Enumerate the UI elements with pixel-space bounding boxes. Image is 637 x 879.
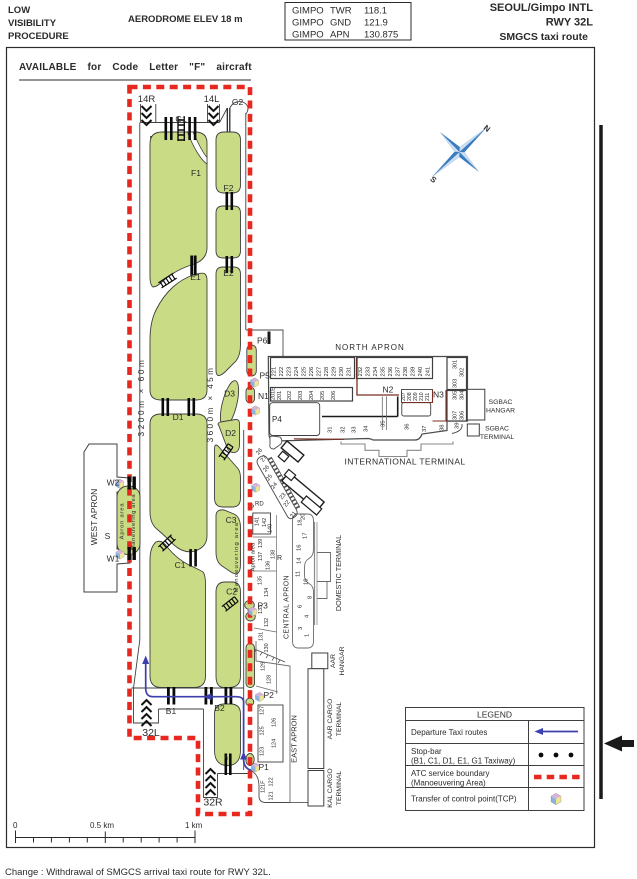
- svg-text:G1: G1: [175, 114, 187, 124]
- svg-text:GIMPO: GIMPO: [292, 30, 324, 41]
- svg-text:CENTRAL APRON: CENTRAL APRON: [284, 575, 291, 639]
- svg-text:211: 211: [425, 393, 431, 401]
- svg-text:ATC service boundary: ATC service boundary: [411, 769, 490, 778]
- svg-text:P5: P5: [260, 371, 271, 381]
- svg-text:1: 1: [305, 634, 311, 637]
- svg-text:137: 137: [258, 552, 264, 561]
- svg-text:130.875: 130.875: [364, 30, 398, 41]
- svg-text:A: A: [224, 756, 228, 762]
- svg-text:0.5 km: 0.5 km: [90, 821, 114, 830]
- svg-text:Maneuvering area: Maneuvering area: [131, 494, 137, 551]
- svg-text:GIMPO: GIMPO: [292, 6, 324, 17]
- svg-text:HANGAR: HANGAR: [339, 646, 346, 675]
- svg-text:14L: 14L: [204, 94, 220, 105]
- svg-text:W1: W1: [107, 554, 120, 564]
- svg-text:135: 135: [258, 576, 264, 585]
- svg-text:127: 127: [260, 706, 266, 715]
- svg-text:129: 129: [261, 662, 267, 671]
- svg-text:N1: N1: [258, 391, 269, 401]
- svg-text:SGBAC: SGBAC: [489, 399, 513, 406]
- svg-text:PROCEDURE: PROCEDURE: [8, 31, 69, 42]
- svg-text:P3: P3: [258, 601, 269, 611]
- svg-text:N3: N3: [433, 390, 444, 400]
- svg-text:305: 305: [453, 391, 459, 400]
- svg-text:G2: G2: [232, 97, 244, 107]
- svg-text:8: 8: [308, 596, 314, 599]
- svg-text:(Manoeuvering Area): (Manoeuvering Area): [411, 779, 486, 788]
- svg-text:10: 10: [304, 579, 310, 585]
- svg-text:P2: P2: [264, 690, 275, 700]
- svg-text:16: 16: [297, 545, 303, 551]
- svg-text:136: 136: [266, 561, 272, 570]
- svg-text:125: 125: [260, 726, 266, 735]
- svg-text:C2: C2: [226, 587, 237, 597]
- svg-text:WEST APRON: WEST APRON: [89, 489, 99, 546]
- svg-text:140: 140: [268, 524, 274, 533]
- svg-text:121: 121: [269, 791, 275, 800]
- svg-text:Change : Withdrawal of SMGCS a: Change : Withdrawal of SMGCS arrival tax…: [5, 867, 271, 878]
- svg-text:N2: N2: [383, 385, 394, 395]
- svg-text:236: 236: [388, 367, 394, 377]
- svg-text:Apron area: Apron area: [120, 503, 126, 540]
- svg-text:34: 34: [364, 425, 370, 432]
- svg-text:223: 223: [287, 367, 293, 377]
- svg-text:237: 237: [396, 367, 402, 377]
- svg-text:224: 224: [294, 366, 300, 376]
- svg-text:C3: C3: [226, 515, 237, 525]
- svg-text:B2: B2: [214, 703, 225, 713]
- svg-text:14R: 14R: [138, 94, 156, 105]
- svg-text:31: 31: [328, 427, 334, 433]
- svg-text:SMGCS taxi route: SMGCS taxi route: [499, 31, 588, 43]
- svg-text:F1: F1: [191, 168, 201, 178]
- svg-text:AAR CARGO: AAR CARGO: [327, 699, 334, 740]
- svg-text:SGBAC: SGBAC: [485, 426, 509, 433]
- svg-text:37: 37: [422, 426, 428, 432]
- svg-text:P4: P4: [272, 415, 282, 424]
- svg-text:131: 131: [259, 632, 265, 641]
- svg-text:36: 36: [405, 424, 411, 430]
- svg-text:TERMINAL: TERMINAL: [336, 771, 343, 806]
- svg-text:202: 202: [287, 391, 293, 400]
- svg-text:R: R: [277, 555, 282, 562]
- svg-text:P6: P6: [257, 336, 268, 346]
- svg-text:118.1: 118.1: [364, 6, 387, 17]
- svg-text:NORTH APRON: NORTH APRON: [335, 343, 405, 352]
- svg-text:138: 138: [271, 550, 277, 559]
- svg-text:132: 132: [264, 618, 270, 627]
- svg-text:235: 235: [381, 367, 387, 377]
- svg-text:Stop-bar: Stop-bar: [411, 747, 442, 756]
- svg-text:AAR: AAR: [330, 654, 337, 668]
- svg-text:139: 139: [258, 539, 264, 548]
- svg-text:307: 307: [453, 411, 459, 420]
- svg-text:EAST APRON: EAST APRON: [290, 715, 299, 763]
- svg-text:33: 33: [352, 427, 358, 433]
- svg-text:301: 301: [453, 360, 459, 369]
- svg-text:231: 231: [347, 367, 353, 377]
- svg-text:233: 233: [366, 367, 372, 377]
- svg-text:17: 17: [303, 533, 309, 539]
- svg-text:205: 205: [320, 391, 326, 400]
- svg-text:S: S: [105, 531, 111, 541]
- svg-text:TWR: TWR: [330, 6, 352, 17]
- svg-text:INTERNATIONAL TERMINAL: INTERNATIONAL TERMINAL: [344, 457, 465, 467]
- svg-text:241: 241: [426, 367, 432, 377]
- svg-text:128: 128: [267, 675, 273, 684]
- svg-text:124: 124: [272, 739, 278, 748]
- svg-text:123: 123: [260, 747, 266, 756]
- svg-text:0: 0: [13, 821, 18, 830]
- svg-text:14: 14: [297, 557, 303, 564]
- svg-text:AERODROME ELEV 18 m: AERODROME ELEV 18 m: [128, 14, 243, 25]
- svg-text:LOW: LOW: [8, 5, 30, 16]
- svg-text:126: 126: [272, 718, 278, 727]
- svg-text:201E: 201E: [271, 387, 277, 400]
- svg-text:230: 230: [339, 367, 345, 377]
- svg-text:3600m × 45m: 3600m × 45m: [206, 366, 215, 443]
- svg-text:306: 306: [460, 411, 466, 420]
- svg-text:3: 3: [298, 627, 304, 630]
- svg-text:F2: F2: [224, 183, 234, 193]
- svg-text:TERMINAL: TERMINAL: [336, 702, 343, 737]
- svg-text:35: 35: [381, 421, 387, 427]
- svg-text:303: 303: [453, 379, 459, 388]
- svg-text:Manoeuvering area: Manoeuvering area: [234, 522, 240, 592]
- svg-text:39: 39: [455, 423, 461, 429]
- svg-text:TERMINAL: TERMINAL: [480, 434, 515, 441]
- svg-text:3200m × 60m: 3200m × 60m: [137, 358, 146, 437]
- svg-text:VISIBILITY: VISIBILITY: [8, 18, 57, 29]
- svg-text:Departure Taxi routes: Departure Taxi routes: [411, 728, 487, 737]
- svg-text:134: 134: [264, 588, 270, 597]
- svg-text:GND: GND: [330, 18, 351, 29]
- svg-text:232: 232: [358, 367, 364, 377]
- svg-text:11: 11: [296, 571, 302, 577]
- svg-text:D1: D1: [173, 412, 184, 422]
- svg-text:RWY 32L: RWY 32L: [546, 17, 594, 29]
- svg-text:32: 32: [341, 427, 347, 433]
- svg-text:KAL CARGO: KAL CARGO: [327, 768, 334, 807]
- svg-text:AVAILABLE for Code Letter "F": AVAILABLE for Code Letter "F" aircraft: [19, 62, 252, 73]
- svg-text:130: 130: [264, 643, 270, 652]
- svg-text:DOMESTIC TERMINAL: DOMESTIC TERMINAL: [334, 535, 343, 611]
- svg-text:38: 38: [440, 425, 446, 431]
- svg-text:225: 225: [302, 367, 308, 377]
- svg-text:W2: W2: [107, 478, 120, 488]
- svg-text:20: 20: [301, 514, 307, 520]
- svg-text:121.9: 121.9: [364, 18, 388, 29]
- svg-text:E1: E1: [190, 272, 201, 282]
- svg-text:227: 227: [317, 367, 323, 377]
- svg-text:Transfer of control point(TCP): Transfer of control point(TCP): [411, 795, 517, 804]
- svg-text:D2: D2: [225, 428, 236, 438]
- svg-text:32R: 32R: [203, 797, 223, 809]
- svg-text:(B1, C1, D1, E1, G1 Taxiway): (B1, C1, D1, E1, G1 Taxiway): [411, 757, 516, 766]
- svg-text:234: 234: [373, 366, 379, 376]
- svg-text:204: 204: [309, 391, 315, 400]
- svg-text:228: 228: [324, 367, 330, 377]
- svg-text:1 km: 1 km: [185, 821, 203, 830]
- svg-text:P1: P1: [259, 762, 270, 772]
- svg-text:Apron area: Apron area: [251, 542, 257, 571]
- svg-text:C1: C1: [175, 560, 186, 570]
- svg-text:239: 239: [411, 367, 417, 377]
- svg-text:D3: D3: [224, 389, 235, 399]
- svg-text:203: 203: [298, 391, 304, 400]
- svg-text:221: 221: [272, 367, 278, 377]
- svg-text:B1: B1: [166, 706, 177, 716]
- svg-text:240: 240: [418, 367, 424, 377]
- svg-text:SEOUL/Gimpo INTL: SEOUL/Gimpo INTL: [490, 2, 594, 14]
- svg-text:229: 229: [332, 367, 338, 377]
- svg-text:LEGEND: LEGEND: [477, 710, 512, 720]
- svg-text:HANGAR: HANGAR: [486, 408, 515, 415]
- svg-text:E2: E2: [223, 268, 234, 278]
- svg-text:304: 304: [460, 391, 466, 400]
- svg-text:121F: 121F: [261, 780, 267, 793]
- svg-text:RD: RD: [255, 502, 264, 508]
- svg-text:238: 238: [403, 367, 409, 377]
- svg-text:APN: APN: [330, 30, 350, 41]
- svg-text:6: 6: [298, 605, 304, 608]
- svg-text:201: 201: [277, 391, 283, 400]
- svg-text:302: 302: [460, 368, 466, 377]
- svg-text:206: 206: [331, 391, 337, 400]
- svg-text:226: 226: [309, 367, 315, 377]
- svg-text:GIMPO: GIMPO: [292, 18, 324, 29]
- svg-text:141: 141: [255, 517, 261, 526]
- svg-text:222: 222: [279, 367, 285, 377]
- svg-text:122: 122: [269, 777, 275, 786]
- svg-text:32L: 32L: [142, 727, 160, 739]
